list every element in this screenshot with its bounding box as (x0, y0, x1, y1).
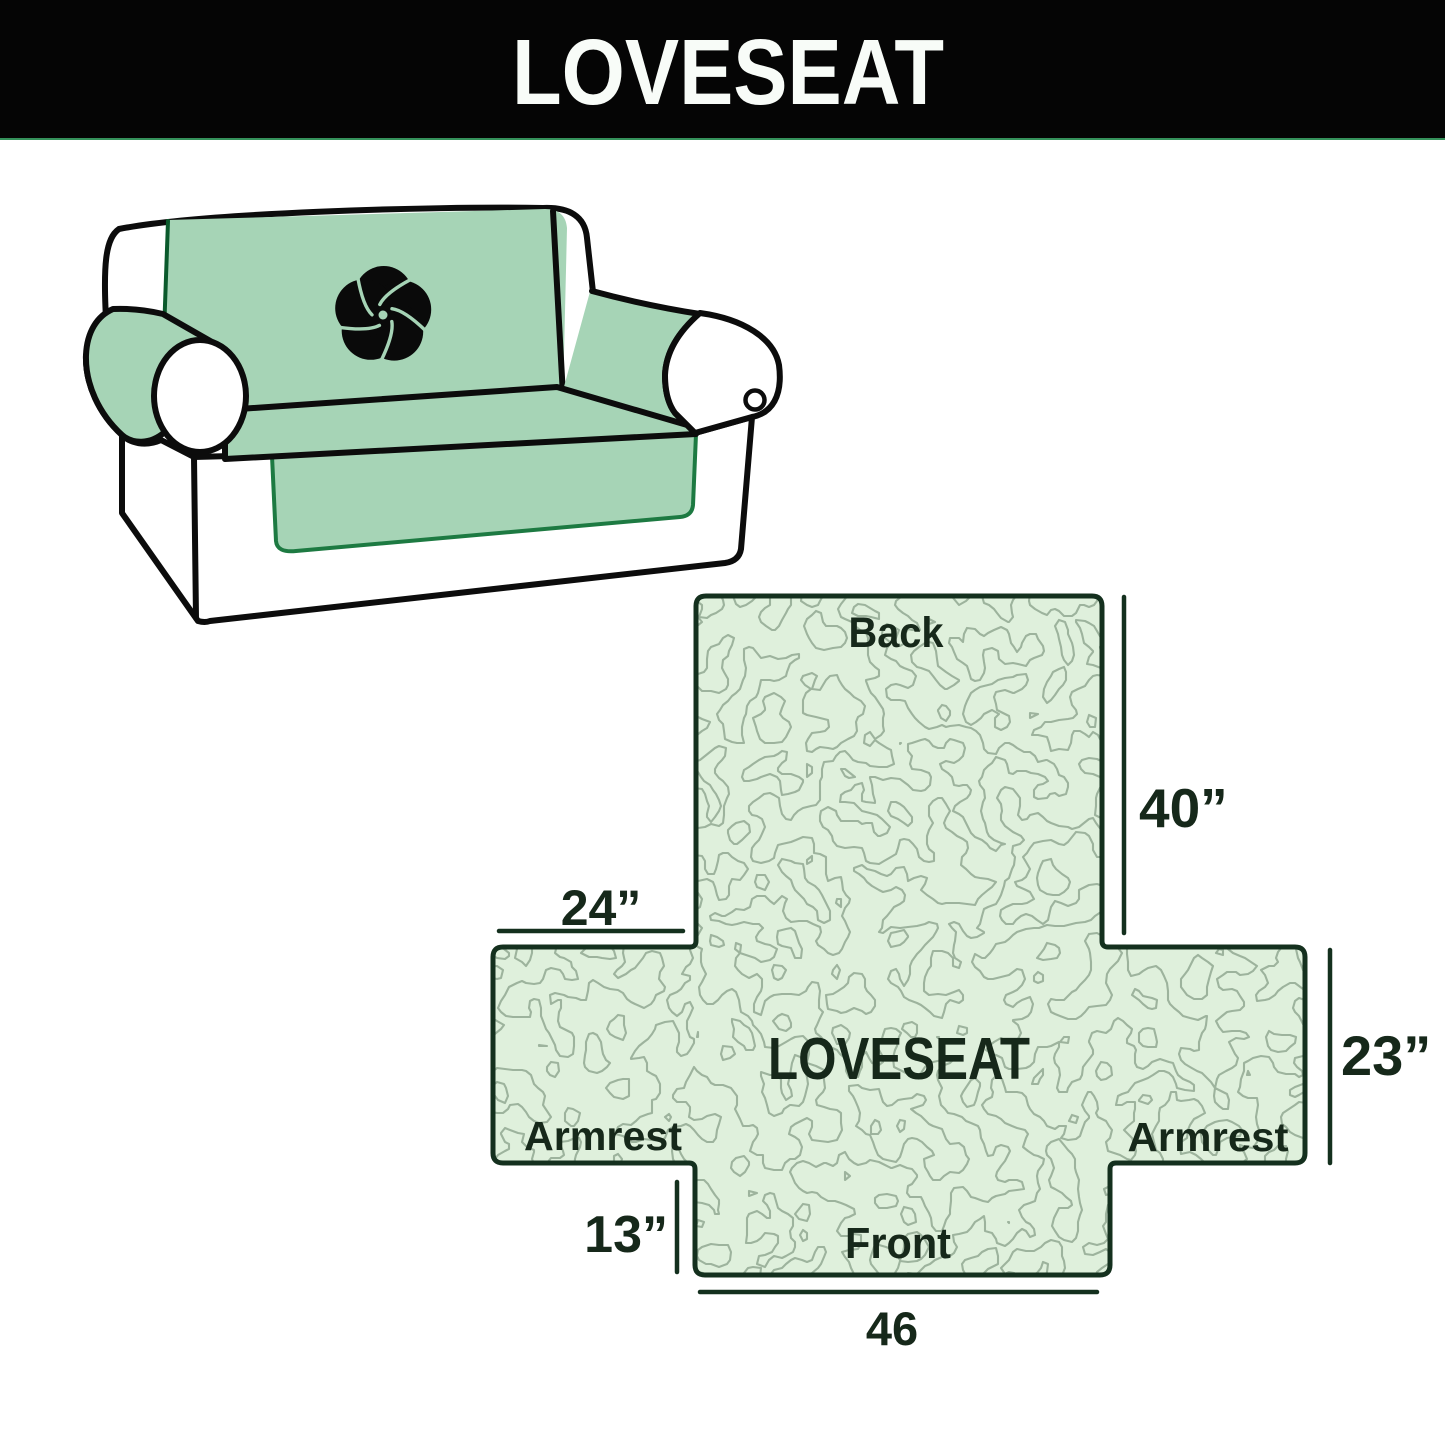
svg-text:23”: 23” (1341, 1024, 1431, 1087)
svg-text:13”: 13” (584, 1206, 668, 1264)
svg-text:Front: Front (845, 1219, 951, 1268)
svg-text:LOVESEAT: LOVESEAT (768, 1026, 1030, 1092)
svg-text:24”: 24” (561, 880, 642, 936)
svg-text:40”: 40” (1139, 777, 1228, 839)
svg-text:Back: Back (849, 609, 944, 657)
svg-text:Armrest: Armrest (524, 1113, 682, 1159)
svg-text:Armrest: Armrest (1128, 1114, 1289, 1160)
svg-text:46: 46 (866, 1302, 918, 1355)
svg-text:LOVESEAT: LOVESEAT (512, 20, 944, 124)
